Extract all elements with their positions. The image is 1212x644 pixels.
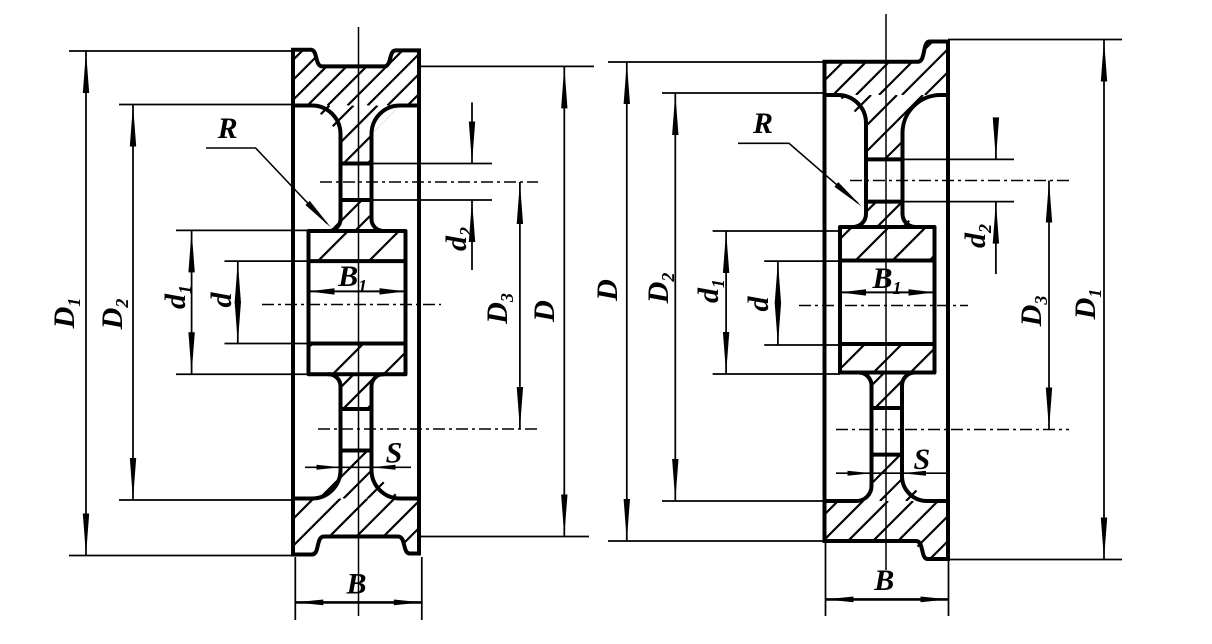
svg-text:B: B (873, 564, 894, 597)
svg-text:S: S (913, 443, 930, 476)
svg-text:R: R (752, 107, 773, 140)
svg-text:B: B (345, 568, 366, 601)
svg-text:d: d (742, 296, 775, 312)
svg-text:d: d (205, 292, 238, 308)
svg-text:S: S (386, 437, 403, 470)
svg-text:R: R (217, 112, 238, 145)
svg-text:D: D (528, 300, 561, 323)
svg-text:D: D (591, 279, 624, 302)
